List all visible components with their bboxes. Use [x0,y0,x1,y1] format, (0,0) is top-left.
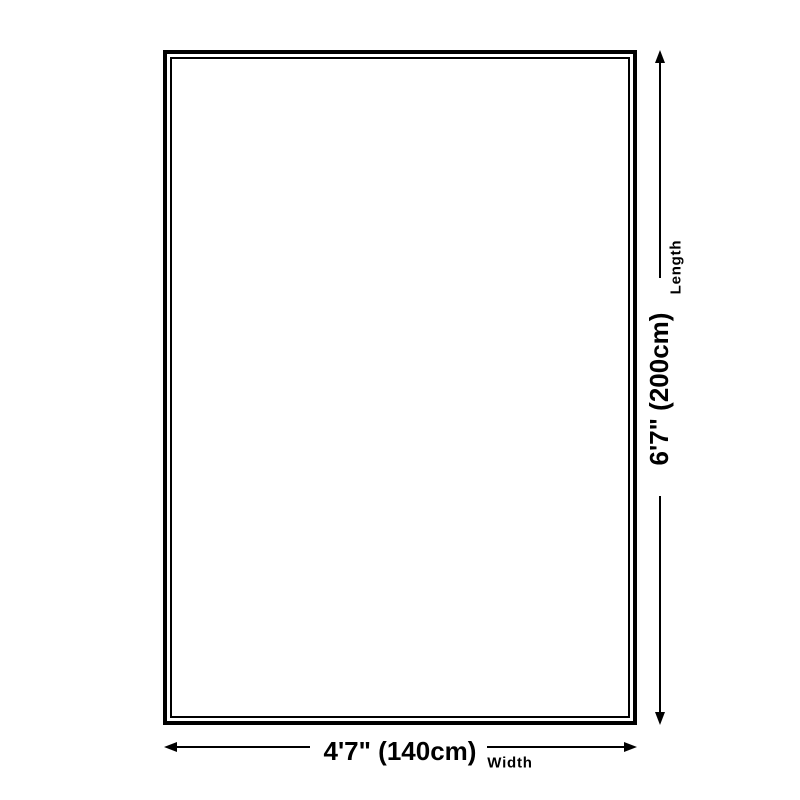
product-outline-outer [163,50,637,725]
arrow-down-icon [655,712,665,725]
dimension-diagram: Length 6'7" (200cm) 4'7" (140cm) Width [0,0,800,800]
product-outline-inner [170,57,630,718]
width-line-left-segment [177,746,310,748]
arrow-right-icon [624,742,637,752]
length-line-top-segment [659,62,661,278]
length-axis-label: Length [669,240,684,295]
width-axis-label: Width [487,756,533,771]
width-dimension-value: 4'7" (140cm) [324,738,477,764]
arrow-left-icon [164,742,177,752]
length-line-bottom-segment [659,496,661,712]
width-line-right-segment [487,746,624,748]
length-dimension-value: 6'7" (200cm) [646,313,672,466]
